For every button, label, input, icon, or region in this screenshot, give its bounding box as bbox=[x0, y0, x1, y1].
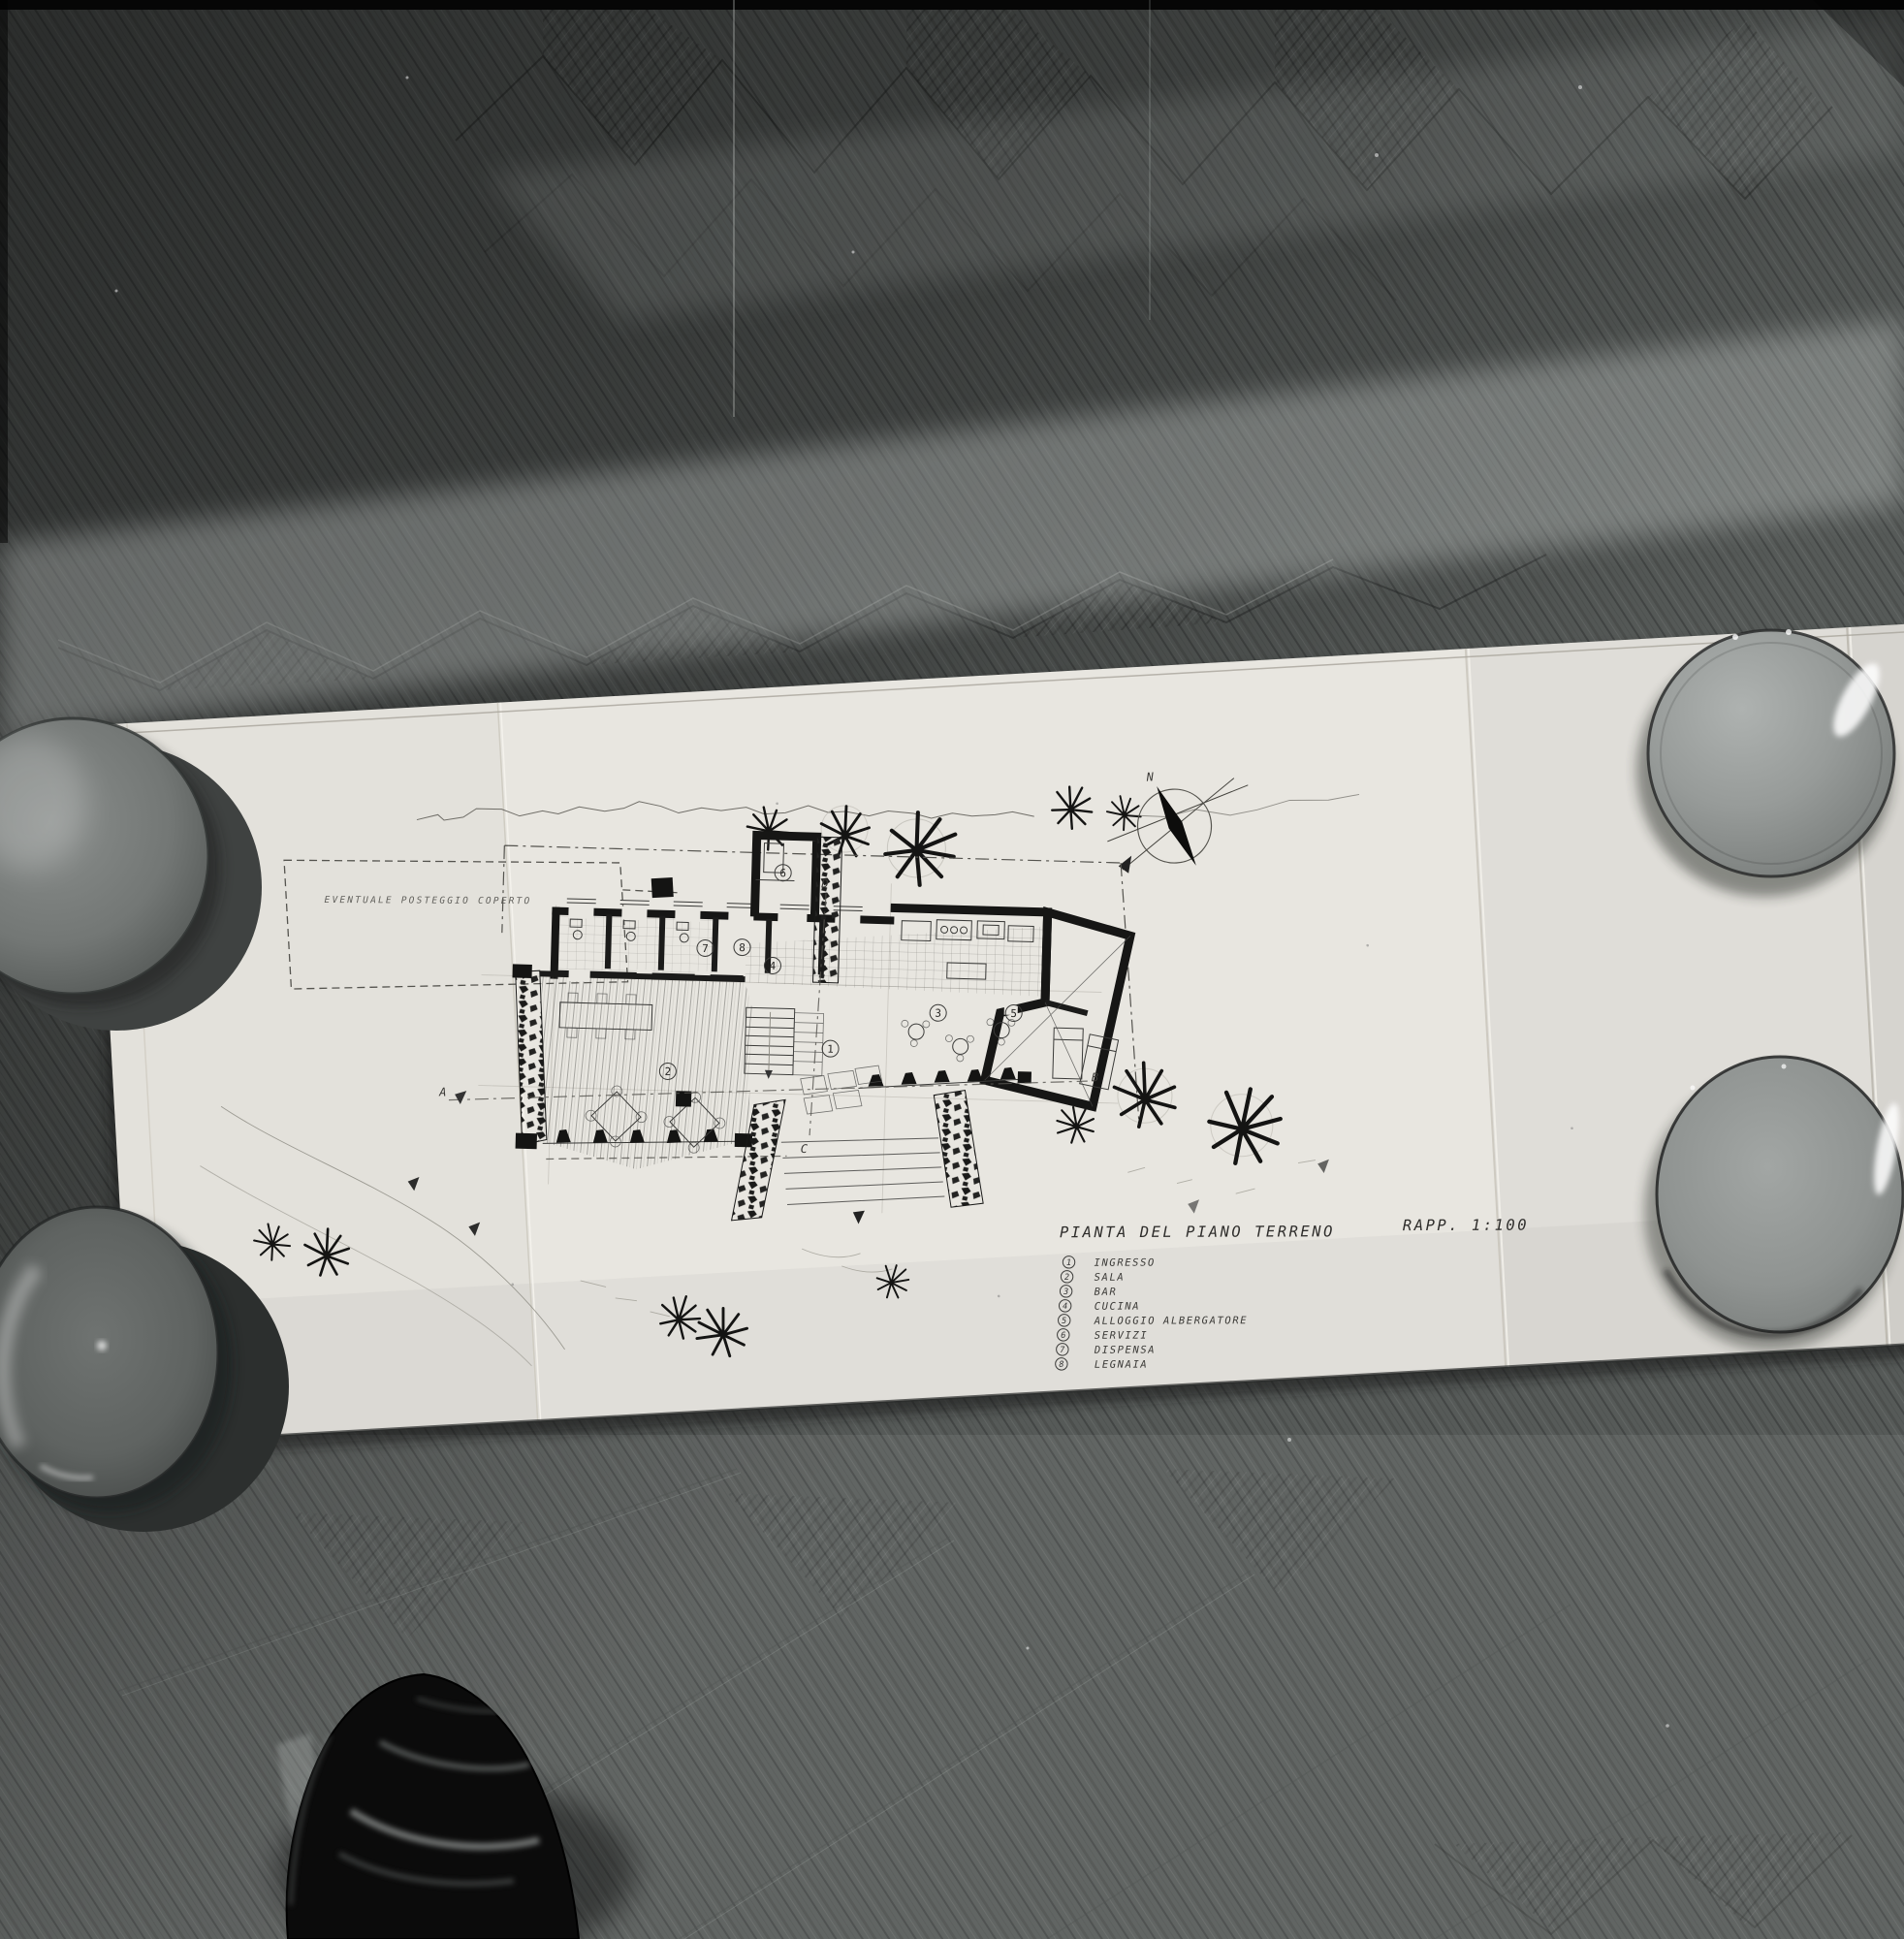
legend-item-number: 6 bbox=[1061, 1331, 1065, 1341]
legend-item-label: ALLOGGIO ALBERGATORE bbox=[1094, 1315, 1248, 1327]
photo-stage: N EVENTUALE POSTEGGIO COPERTO bbox=[0, 0, 1904, 1939]
photo-canvas: N EVENTUALE POSTEGGIO COPERTO bbox=[0, 0, 1904, 1939]
legend-item-label: INGRESSO bbox=[1095, 1257, 1156, 1269]
plan-title: PIANTA DEL PIANO TERRENO bbox=[1060, 1223, 1335, 1241]
legend-item-label: DISPENSA bbox=[1094, 1345, 1156, 1356]
legend-item-label: LEGNAIA bbox=[1095, 1359, 1148, 1371]
legend-item-number: 4 bbox=[1063, 1302, 1067, 1312]
film-edge-left bbox=[0, 0, 8, 543]
film-edge-top bbox=[0, 0, 1904, 10]
legend-item-label: SALA bbox=[1095, 1272, 1126, 1284]
legend-item-number: 2 bbox=[1064, 1273, 1069, 1283]
legend-item-number: 1 bbox=[1066, 1258, 1071, 1268]
plan-scale: RAPP. 1:100 bbox=[1403, 1217, 1529, 1234]
section-marker-c: C bbox=[800, 1142, 808, 1156]
legend-item-number: 3 bbox=[1063, 1287, 1068, 1297]
legend-item-number: 5 bbox=[1062, 1317, 1066, 1326]
room-number-2-label: 2 bbox=[664, 1065, 671, 1078]
parking-label: EVENTUALE POSTEGGIO COPERTO bbox=[325, 895, 532, 906]
room-number-3-label: 3 bbox=[935, 1007, 941, 1020]
room-number-1-label: 1 bbox=[827, 1043, 834, 1056]
room-number-4-label: 4 bbox=[769, 960, 776, 972]
legend-item-label: CUCINA bbox=[1095, 1301, 1141, 1313]
legend-item-label: SERVIZI bbox=[1095, 1330, 1148, 1342]
compass-north-label: N bbox=[1145, 770, 1155, 783]
legend-item-number: 8 bbox=[1059, 1360, 1063, 1370]
section-marker-a: A bbox=[438, 1085, 447, 1098]
room-number-5-label: 5 bbox=[1010, 1007, 1017, 1020]
section-marker-b: B bbox=[1092, 1070, 1099, 1084]
floor-plan-sheet: N EVENTUALE POSTEGGIO COPERTO bbox=[87, 620, 1904, 1457]
legend-item-label: BAR bbox=[1095, 1287, 1118, 1298]
room-number-6-label: 6 bbox=[779, 867, 786, 879]
room-number-7-label: 7 bbox=[702, 942, 709, 955]
room-number-8-label: 8 bbox=[739, 941, 746, 954]
section-marker-d: D bbox=[820, 876, 829, 890]
legend-item-number: 7 bbox=[1060, 1346, 1065, 1355]
parking-pillar bbox=[651, 877, 674, 898]
